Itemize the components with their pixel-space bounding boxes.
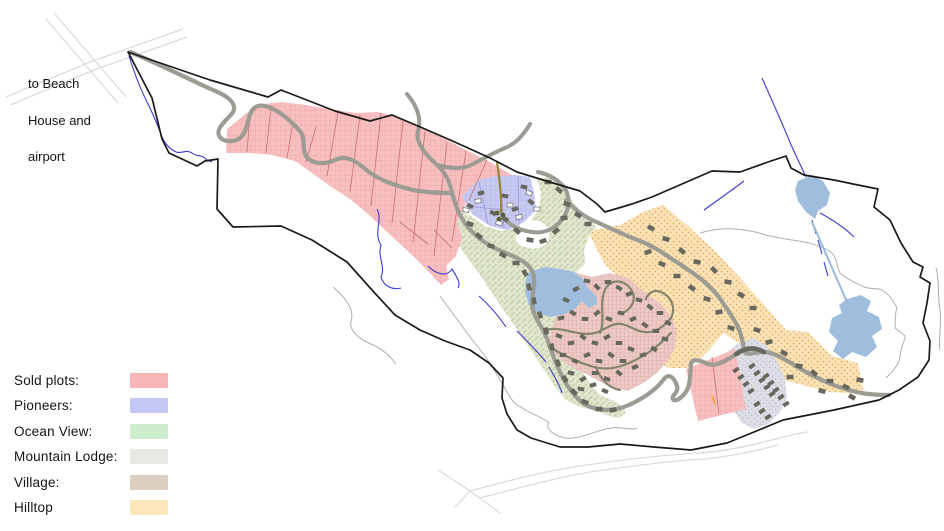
legend-swatch-village <box>130 475 168 490</box>
note-line-3: airport <box>28 148 91 166</box>
legend-label: Mountain Lodge: <box>14 449 130 464</box>
building <box>653 329 660 333</box>
building <box>507 203 513 207</box>
building <box>585 222 592 227</box>
water-channel <box>812 222 847 302</box>
building <box>601 388 609 394</box>
note-line-2: House and <box>28 112 91 130</box>
legend-row-mountain-lodge: Mountain Lodge: <box>14 449 168 465</box>
building <box>848 393 856 400</box>
building <box>657 311 664 315</box>
legend-label: Pioneers: <box>14 398 130 413</box>
north-pond <box>795 175 830 219</box>
building <box>582 317 589 321</box>
building <box>513 261 520 266</box>
building <box>605 280 612 284</box>
legend-swatch-sold-plots <box>130 373 168 388</box>
building <box>674 274 681 279</box>
map-note: to Beach House and airport <box>28 57 91 184</box>
note-line-1: to Beach <box>28 75 91 93</box>
building <box>750 306 757 311</box>
building <box>592 371 599 375</box>
ocean-view-clearing <box>516 220 549 248</box>
legend-swatch-hilltop <box>130 500 168 515</box>
legend: Sold plots: Pioneers: Ocean View: Mounta… <box>14 372 168 525</box>
building <box>463 208 470 213</box>
building <box>620 359 627 363</box>
legend-row-village: Village: <box>14 474 168 490</box>
legend-swatch-pioneers <box>130 398 168 413</box>
building <box>596 407 603 412</box>
legend-label: Ocean View: <box>14 424 130 439</box>
legend-label: Hilltop <box>14 500 130 515</box>
building <box>787 375 794 380</box>
legend-label: Sold plots: <box>14 373 130 388</box>
building <box>534 207 540 211</box>
building <box>616 341 623 345</box>
legend-swatch-ocean-view <box>130 424 168 439</box>
building <box>560 353 567 357</box>
legend-row-sold-plots: Sold plots: <box>14 372 168 388</box>
legend-swatch-mountain-lodge <box>130 449 168 464</box>
building <box>475 199 482 204</box>
legend-row-pioneers: Pioneers: <box>14 398 168 414</box>
building <box>589 382 596 388</box>
legend-label: Village: <box>14 475 130 490</box>
legend-row-ocean-view: Ocean View: <box>14 423 168 439</box>
zones <box>226 102 864 429</box>
legend-row-hilltop: Hilltop <box>14 500 168 516</box>
building <box>827 379 834 384</box>
east-lake <box>829 295 882 359</box>
